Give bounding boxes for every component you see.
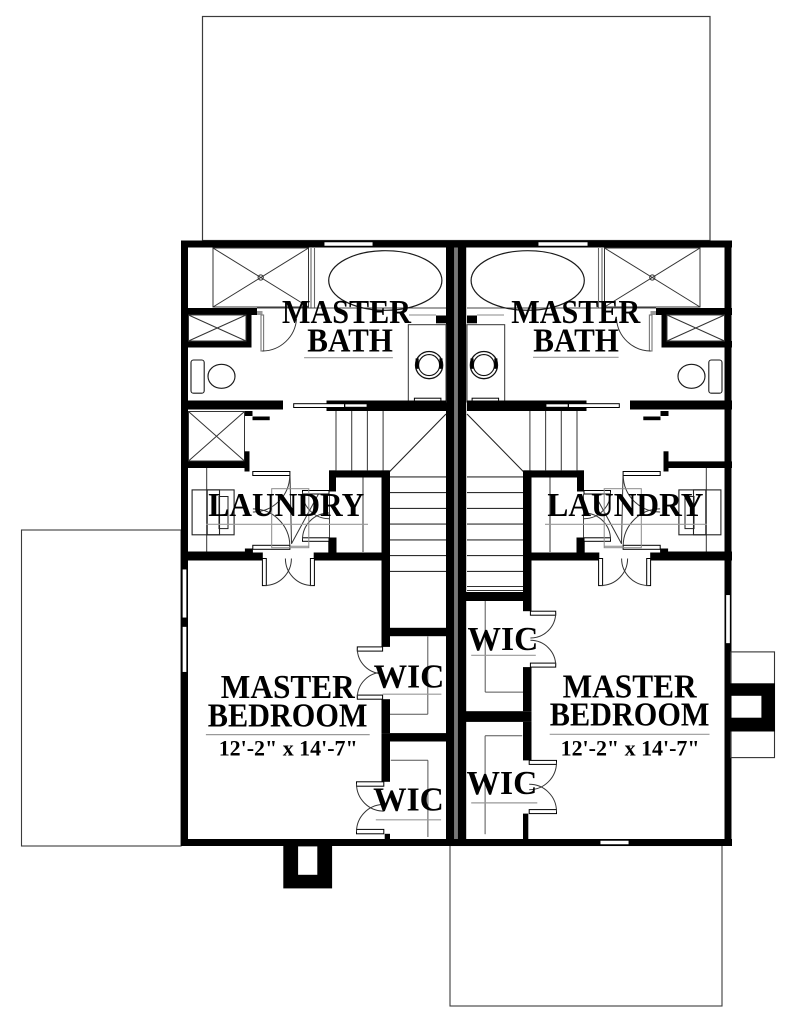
svg-text:BATH: BATH (307, 323, 393, 360)
svg-text:WIC: WIC (373, 781, 444, 818)
svg-text:WIC: WIC (374, 658, 445, 695)
svg-text:LAUNDRY: LAUNDRY (208, 487, 364, 524)
svg-text:12'-2" x 14'-7": 12'-2" x 14'-7" (561, 735, 700, 760)
svg-text:BATH: BATH (533, 323, 619, 360)
svg-text:BEDROOM: BEDROOM (550, 696, 710, 733)
svg-text:WIC: WIC (467, 765, 538, 802)
svg-text:BEDROOM: BEDROOM (208, 697, 368, 734)
svg-text:LAUNDRY: LAUNDRY (547, 487, 703, 524)
svg-text:12'-2" x 14'-7": 12'-2" x 14'-7" (219, 735, 358, 760)
svg-text:WIC: WIC (468, 621, 539, 658)
